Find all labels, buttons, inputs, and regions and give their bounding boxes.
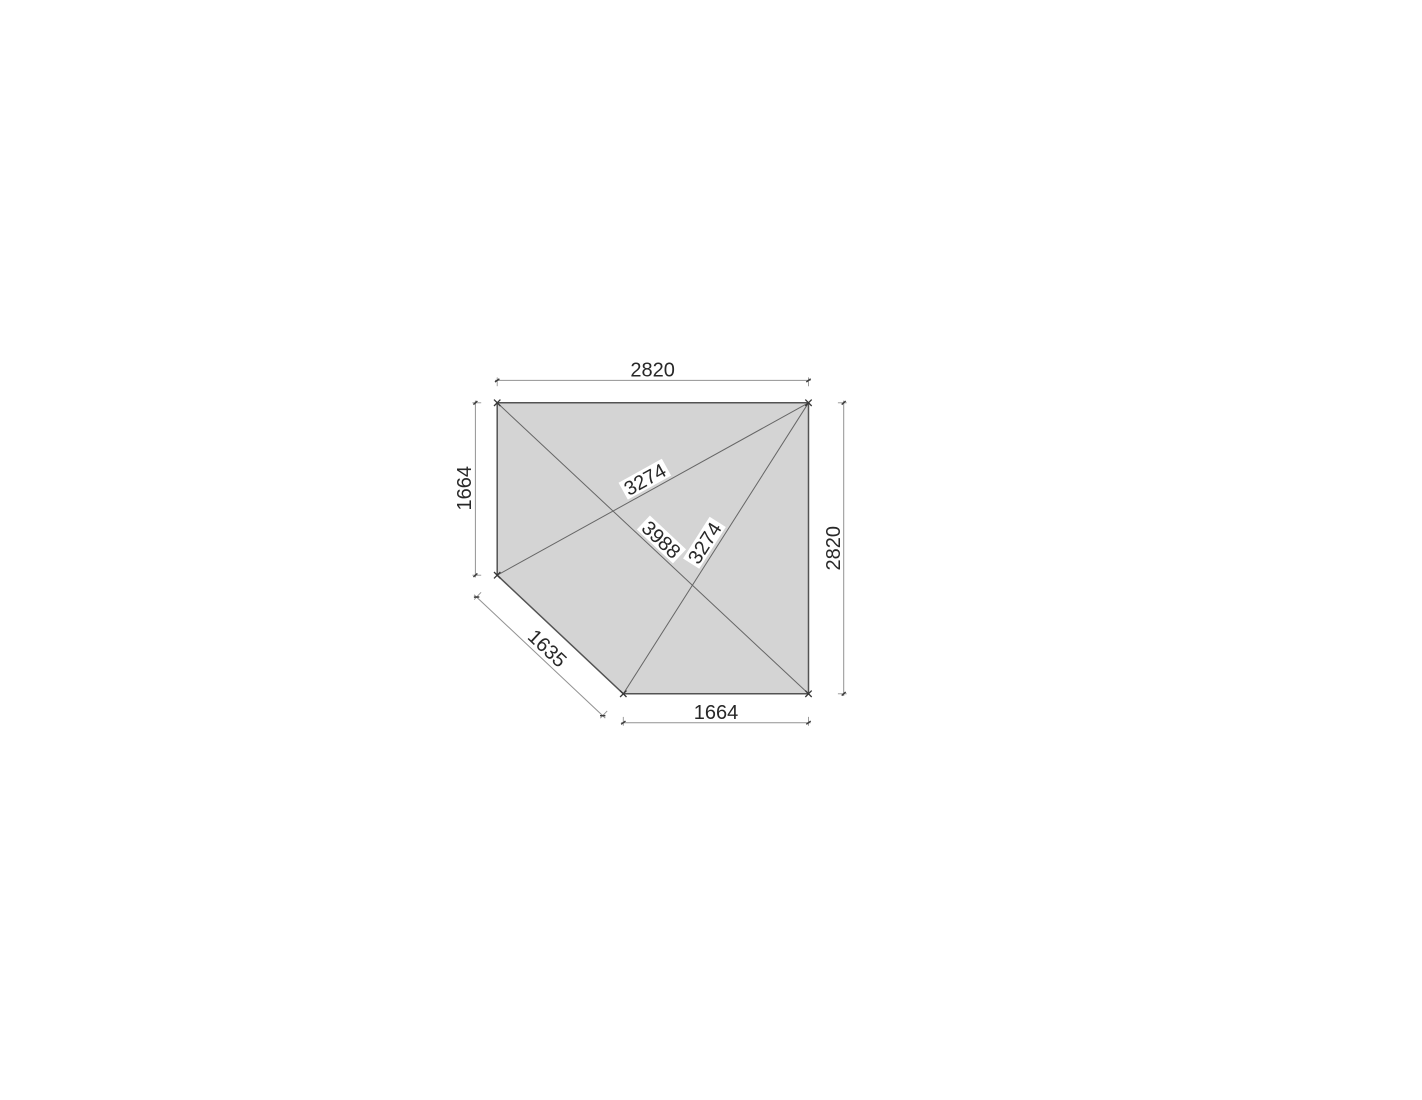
svg-text:1664: 1664 [694,702,739,724]
svg-text:1664: 1664 [454,466,476,511]
svg-text:2820: 2820 [823,526,845,571]
svg-text:2820: 2820 [630,359,675,381]
